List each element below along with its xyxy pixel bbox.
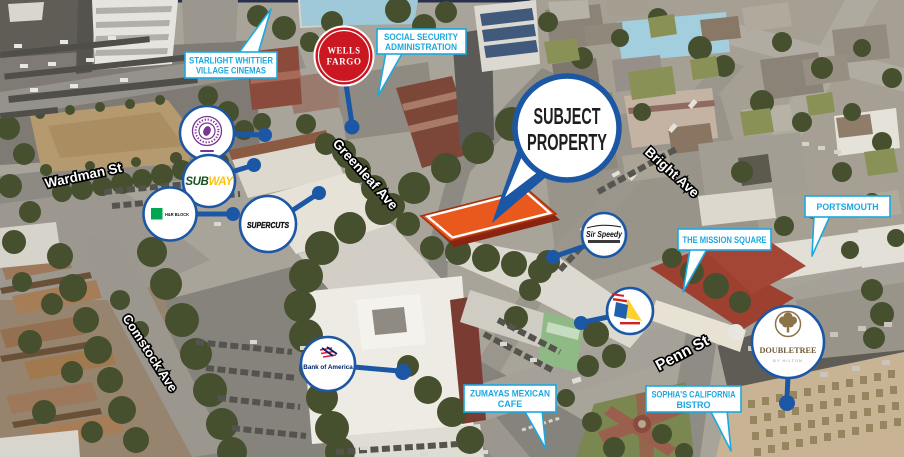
svg-text:SOPHIA'S CALIFORNIA: SOPHIA'S CALIFORNIA: [652, 390, 736, 400]
svg-text:PORTSMOUTH: PORTSMOUTH: [817, 202, 879, 213]
svg-text:Sir Speedy: Sir Speedy: [586, 229, 623, 239]
svg-text:SUPERCUTS: SUPERCUTS: [247, 221, 290, 230]
svg-text:SUBWAY: SUBWAY: [185, 176, 234, 188]
svg-text:Bank of America: Bank of America: [303, 364, 353, 371]
svg-text:FARGO: FARGO: [327, 58, 362, 68]
svg-text:BISTRO: BISTRO: [676, 400, 710, 410]
svg-text:H&R BLOCK: H&R BLOCK: [165, 212, 190, 217]
svg-text:WELLS: WELLS: [328, 47, 361, 57]
svg-text:CAFE: CAFE: [498, 399, 523, 409]
svg-text:ZUMAYAS MEXICAN: ZUMAYAS MEXICAN: [470, 389, 550, 399]
svg-text:STARLIGHT WHITTIER: STARLIGHT WHITTIER: [189, 56, 273, 66]
svg-text:ADMINISTRATION: ADMINISTRATION: [385, 42, 457, 52]
svg-text:SOCIAL SECURITY: SOCIAL SECURITY: [384, 32, 458, 42]
svg-text:PROPERTY: PROPERTY: [527, 129, 607, 155]
svg-text:BY HILTON: BY HILTON: [773, 358, 803, 363]
svg-text:DOUBLETREE: DOUBLETREE: [760, 346, 817, 355]
svg-text:VILLAGE CINEMAS: VILLAGE CINEMAS: [196, 66, 266, 76]
svg-text:THE MISSION SQUARE: THE MISSION SQUARE: [683, 235, 767, 246]
svg-text:SUBJECT: SUBJECT: [534, 103, 601, 129]
